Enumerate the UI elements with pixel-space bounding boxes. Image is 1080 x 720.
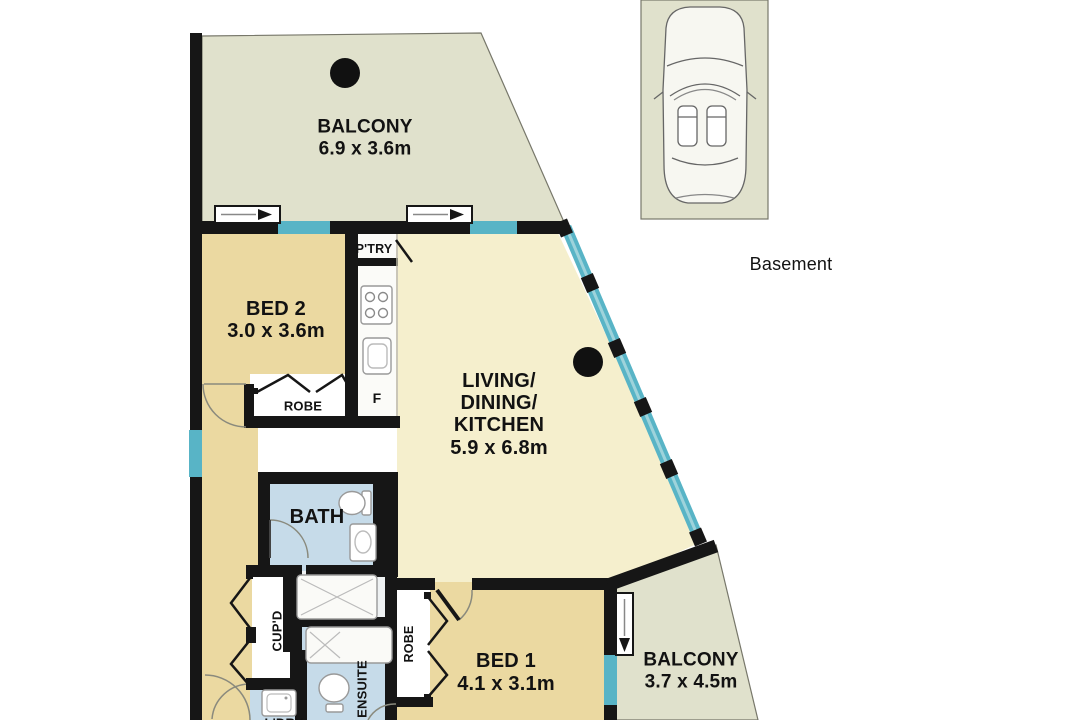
sliding-door-balcony-2 xyxy=(407,206,472,223)
window-top-1 xyxy=(278,221,330,234)
robe-bed2-label: ROBE xyxy=(284,400,322,413)
column-balcony-icon xyxy=(330,58,360,88)
window-hall xyxy=(189,430,202,477)
living-name-3: KITCHEN xyxy=(454,415,544,435)
floorplan-canvas: BALCONY 6.9 x 3.6m Basement BED 2 3.0 x … xyxy=(0,0,1080,720)
sliding-door-balcony-1 xyxy=(215,206,280,223)
balcony-top-dims: 6.9 x 3.6m xyxy=(319,140,412,159)
basement-label: Basement xyxy=(750,255,833,273)
bed1-dims: 4.1 x 3.1m xyxy=(457,674,555,694)
balcony-top-name: BALCONY xyxy=(317,118,412,137)
window-bed1 xyxy=(604,655,617,705)
balcony-bottom-name: BALCONY xyxy=(643,651,738,670)
wall-left-lower xyxy=(190,477,202,720)
balcony-bottom-dims: 3.7 x 4.5m xyxy=(645,673,738,692)
shower-icon xyxy=(297,575,377,619)
wall-cupboard-midstub xyxy=(246,627,256,643)
laundry-label: L'DRY xyxy=(265,717,304,720)
kitchen-sink-icon xyxy=(363,338,391,374)
wall-bath-right xyxy=(373,472,398,577)
sliding-door-bed1-balcony xyxy=(616,593,633,655)
bed2-name: BED 2 xyxy=(246,299,306,319)
bath-name: BATH xyxy=(290,507,345,527)
bed2-dims: 3.0 x 3.6m xyxy=(227,321,325,341)
living-name-2: DINING/ xyxy=(461,393,538,413)
vanity-icon xyxy=(350,524,376,561)
wall-bath-left xyxy=(258,484,270,577)
wall-bed2-bottom xyxy=(244,416,400,428)
living-name-1: LIVING/ xyxy=(462,371,536,391)
stove-icon xyxy=(361,286,392,324)
wall-pantry xyxy=(358,258,398,266)
ensuite-tub-icon xyxy=(306,627,392,663)
laundry-sink-icon xyxy=(262,690,296,716)
column-living-icon xyxy=(573,347,603,377)
wall-robe1-top xyxy=(390,579,433,589)
window-top-2 xyxy=(470,221,517,234)
wall-bed2-kitchen xyxy=(345,233,358,425)
wall-top-3 xyxy=(517,221,564,234)
ensuite-name: ENSUITE xyxy=(356,660,369,718)
wall-bed1-top-2 xyxy=(472,578,612,590)
floorplan-drawing xyxy=(0,0,1080,720)
fridge-label: F xyxy=(373,391,382,405)
living-dims: 5.9 x 6.8m xyxy=(450,438,548,458)
cupboard-label: CUP'D xyxy=(271,611,284,652)
car-icon xyxy=(654,7,756,203)
pantry-label: P'TRY xyxy=(356,243,393,256)
bed1-name: BED 1 xyxy=(476,651,536,671)
robe-bed1-label: ROBE xyxy=(403,626,416,663)
wall-bed1-right-lower xyxy=(604,705,617,720)
